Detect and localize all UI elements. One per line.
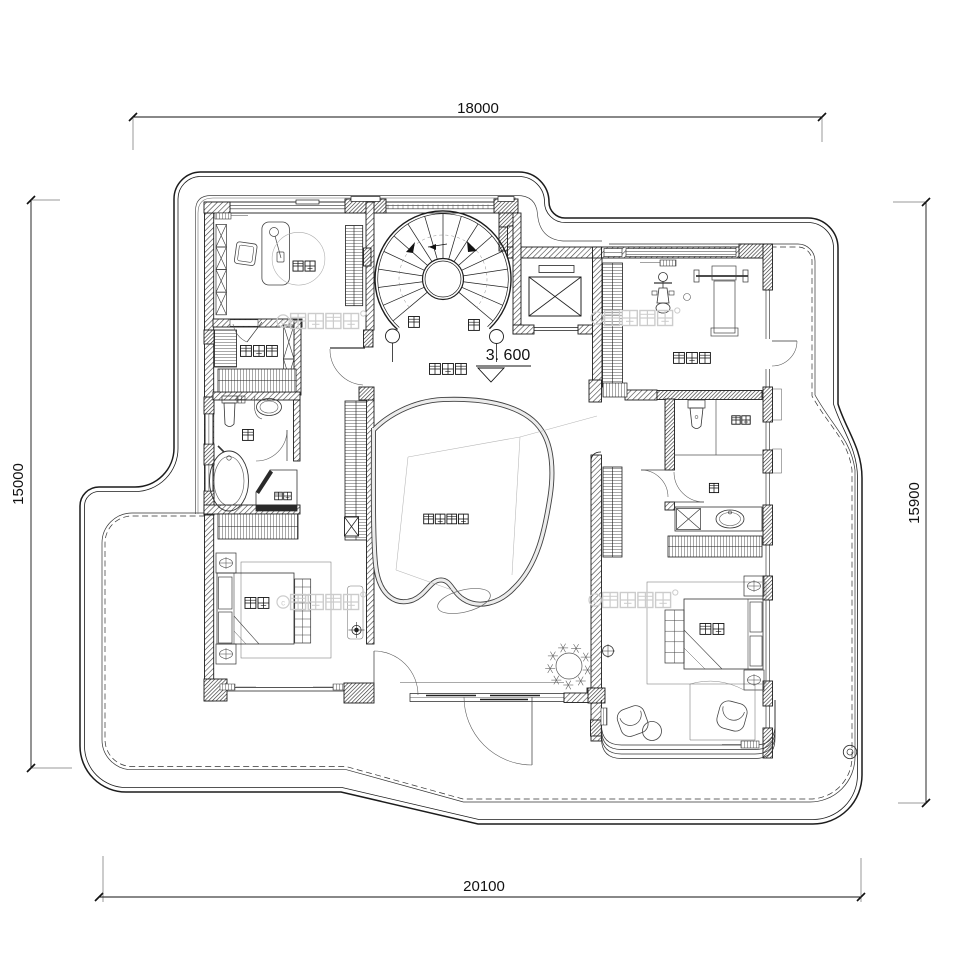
svg-text:c: c — [593, 596, 597, 605]
svg-text:3. 600: 3. 600 — [486, 347, 531, 364]
svg-text:15000: 15000 — [10, 463, 27, 505]
svg-text:15900: 15900 — [906, 482, 923, 524]
svg-text:c: c — [281, 598, 285, 607]
svg-text:c: c — [281, 317, 285, 326]
svg-text:20100: 20100 — [463, 878, 505, 895]
svg-text:18000: 18000 — [457, 100, 499, 117]
svg-text:c: c — [595, 314, 599, 323]
